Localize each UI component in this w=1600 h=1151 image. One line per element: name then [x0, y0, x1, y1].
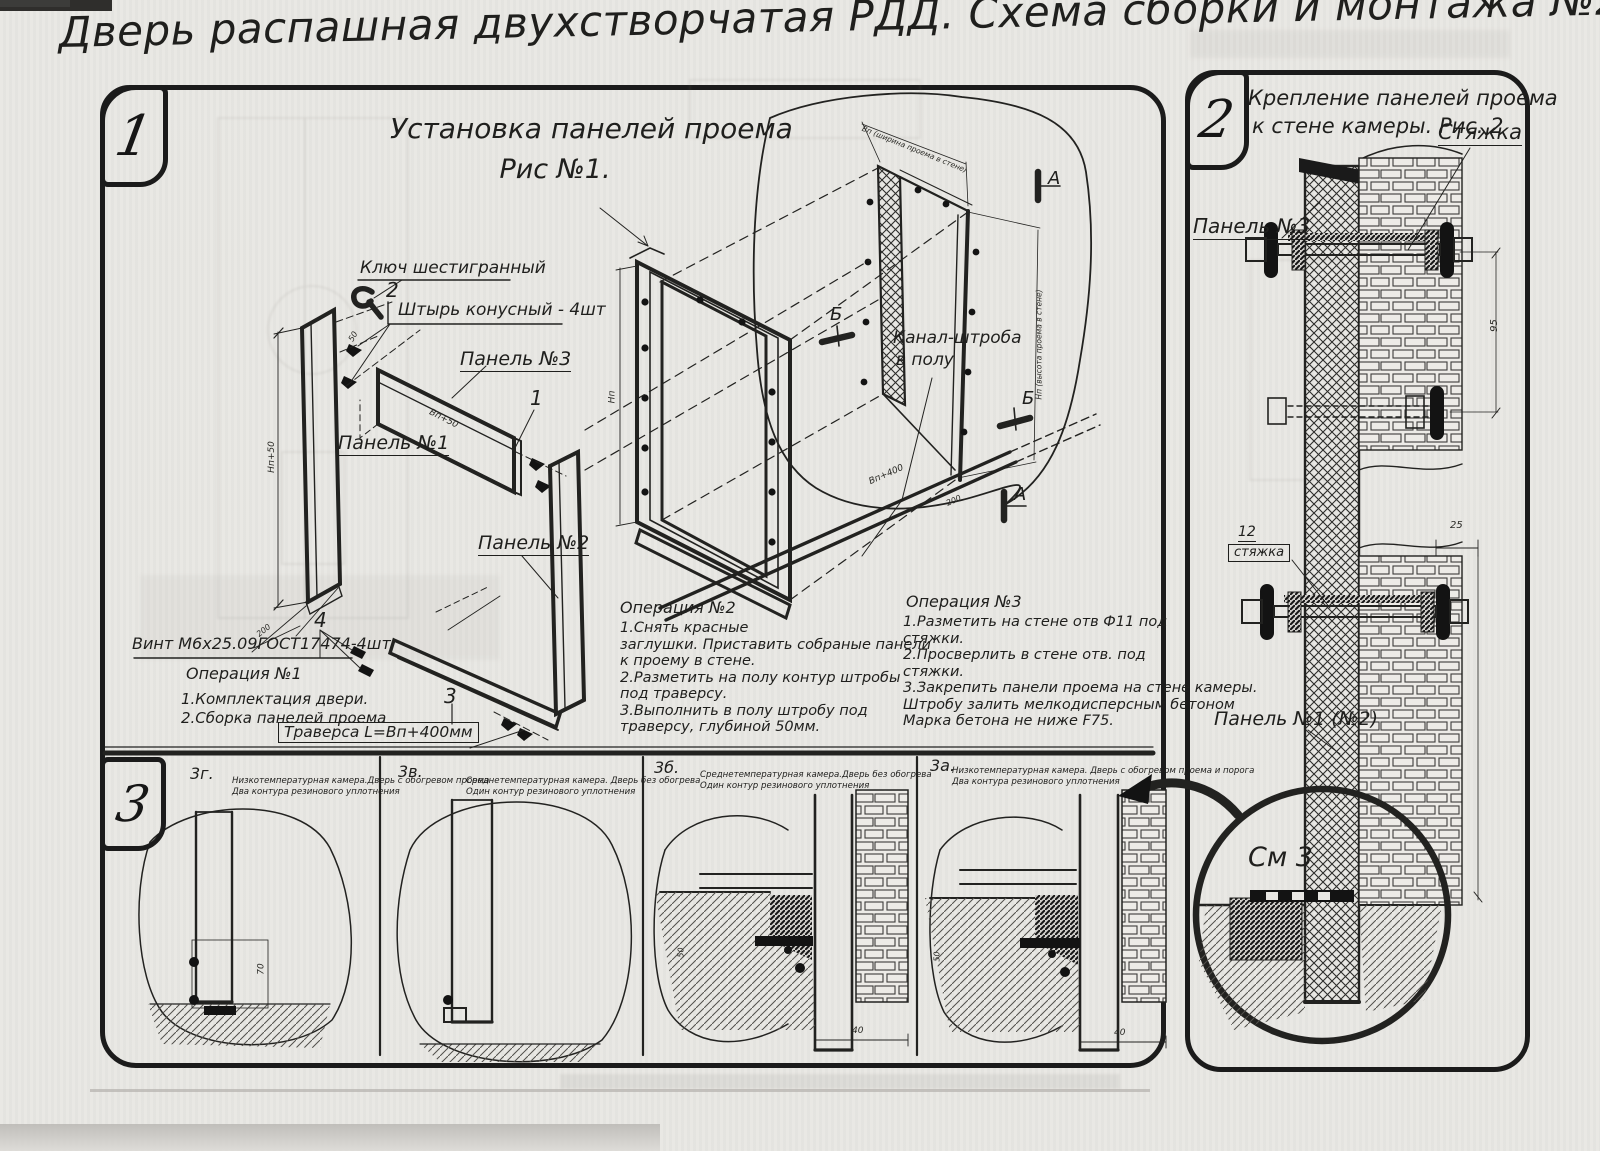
- dim-25: 25: [1450, 520, 1463, 531]
- floor-channel-label-line1: Канал-штроба: [893, 328, 1022, 348]
- detail-3g-caption: Низкотемпературная камера.Дверь с обогре…: [232, 776, 489, 797]
- section3-marker: 3: [100, 757, 166, 851]
- dim-95: 95: [1489, 319, 1500, 332]
- panel3-label: Панель №3: [460, 348, 571, 372]
- detail-3v-label: 3в.: [398, 762, 423, 781]
- operation2-step: 2.Разметить на полу контур штробы: [620, 670, 931, 687]
- panel2-label: Панель №2: [478, 532, 589, 556]
- panel1-label: Панель №1: [338, 432, 449, 456]
- dim-height-np50: Нп+50: [267, 441, 277, 473]
- scanned-drawing-page: Дверь распашная двухстворчатая РДД. Схем…: [0, 0, 1600, 1151]
- operation3-step: Штробу залить мелкодисперсным бетоном: [903, 697, 1257, 714]
- operation2-steps: 1.Снять красные заглушки. Приставить соб…: [620, 620, 931, 736]
- section1-marker: 1: [100, 85, 168, 187]
- section1-number: 1: [110, 104, 157, 169]
- operation3-step: 1.Разметить на стене отв Ф11 под: [903, 614, 1257, 631]
- dim-50-3a: 50: [933, 951, 942, 961]
- operation3-step: Марка бетона не ниже F75.: [903, 713, 1257, 730]
- caption-line: Низкотемпературная камера.Дверь с обогре…: [232, 776, 489, 787]
- operation3-step: 3.Закрепить панели проема на стене камер…: [903, 680, 1257, 697]
- item-number-1: 1: [530, 386, 543, 410]
- operation1-step: 2.Сборка панелей проема: [181, 709, 386, 728]
- dim-70: 70: [257, 963, 267, 974]
- fig2-heading-line1: Крепление панелей проема: [1248, 86, 1478, 110]
- drawing-linework: [0, 0, 1600, 1151]
- item-number-4: 4: [314, 608, 327, 632]
- caption-line: Два контура резинового уплотнения: [952, 777, 1254, 788]
- pin-label: Штырь конусный - 4шт: [398, 300, 606, 320]
- caption-line: Низкотемпературная камера. Дверь с обогр…: [952, 766, 1254, 777]
- operation3-step: 2.Просверлить в стене отв. под: [903, 647, 1257, 664]
- panel1-2-section-label: Панель №1 (№2): [1214, 708, 1378, 730]
- caption-line: Среднетемпературная камера.Дверь без обо…: [700, 770, 932, 781]
- caption-line: Один контур резинового уплотнения: [700, 781, 932, 792]
- operation3-step: стяжки.: [903, 631, 1257, 648]
- dim-height-np: Нп: [607, 391, 617, 404]
- section-mark-a2: А: [1014, 484, 1026, 505]
- see-detail-3-label: См 3: [1248, 842, 1313, 873]
- tie-rod-label: Стяжка: [1438, 120, 1522, 146]
- item-number-3: 3: [444, 684, 457, 708]
- detail-3a-caption: Низкотемпературная камера. Дверь с обогр…: [952, 766, 1254, 787]
- detail-3g-label: 3г.: [190, 764, 214, 783]
- operation2-step: заглушки. Приставить собраные панели: [620, 637, 931, 654]
- operation3-steps: 1.Разметить на стене отв Ф11 под стяжки.…: [903, 614, 1257, 730]
- section2-marker: 2: [1185, 70, 1249, 170]
- operation1-title: Операция №1: [186, 664, 302, 683]
- dim-50-3b: 50: [677, 947, 686, 957]
- section-mark-a1: А: [1048, 168, 1060, 189]
- detail-3b-label: 3б.: [654, 758, 679, 777]
- operation1-steps: 1.Комплектация двери. 2.Сборка панелей п…: [181, 690, 386, 728]
- operation2-step: траверсу, глубиной 50мм.: [620, 719, 931, 736]
- detail-3b-caption: Среднетемпературная камера.Дверь без обо…: [700, 770, 932, 791]
- section-mark-b2: Б: [1022, 388, 1034, 409]
- dim-40-3b: 40: [852, 1026, 863, 1036]
- tie-rod-position-label: стяжка: [1228, 544, 1290, 562]
- floor-channel-label-line2: в полу: [896, 350, 954, 370]
- dim-wall-height: Нп (высота проема в стене): [1035, 289, 1044, 399]
- detail-3v-caption: Среднетемпературная камера. Дверь без об…: [466, 776, 700, 797]
- dim-40-3a: 40: [1114, 1028, 1125, 1038]
- section-mark-b1: Б: [830, 304, 842, 325]
- operation2-step: 1.Снять красные: [620, 620, 931, 637]
- section3-number: 3: [112, 775, 154, 833]
- pin-item-number: 2: [386, 278, 399, 302]
- operation2-title: Операция №2: [620, 598, 736, 617]
- operation1-step: 1.Комплектация двери.: [181, 690, 386, 709]
- fig1-heading-line1: Установка панелей проема: [390, 112, 720, 145]
- caption-line: Два контура резинового уплотнения: [232, 787, 489, 798]
- caption-line: Среднетемпературная камера. Дверь без об…: [466, 776, 700, 787]
- fig1-heading-line2: Рис №1.: [390, 154, 720, 185]
- operation3-step: стяжки.: [903, 664, 1257, 681]
- operation3-title: Операция №3: [906, 592, 1022, 611]
- caption-line: Один контур резинового уплотнения: [466, 787, 700, 798]
- operation2-step: под траверсу.: [620, 686, 931, 703]
- hex-key-label: Ключ шестигранный: [360, 258, 546, 278]
- operation2-step: к проему в стене.: [620, 653, 931, 670]
- section2-number: 2: [1195, 90, 1239, 150]
- position-12-label: 12: [1238, 524, 1256, 542]
- panel3-section-label: Панель №3: [1193, 214, 1310, 240]
- operation2-step: 3.Выполнить в полу штробу под: [620, 703, 931, 720]
